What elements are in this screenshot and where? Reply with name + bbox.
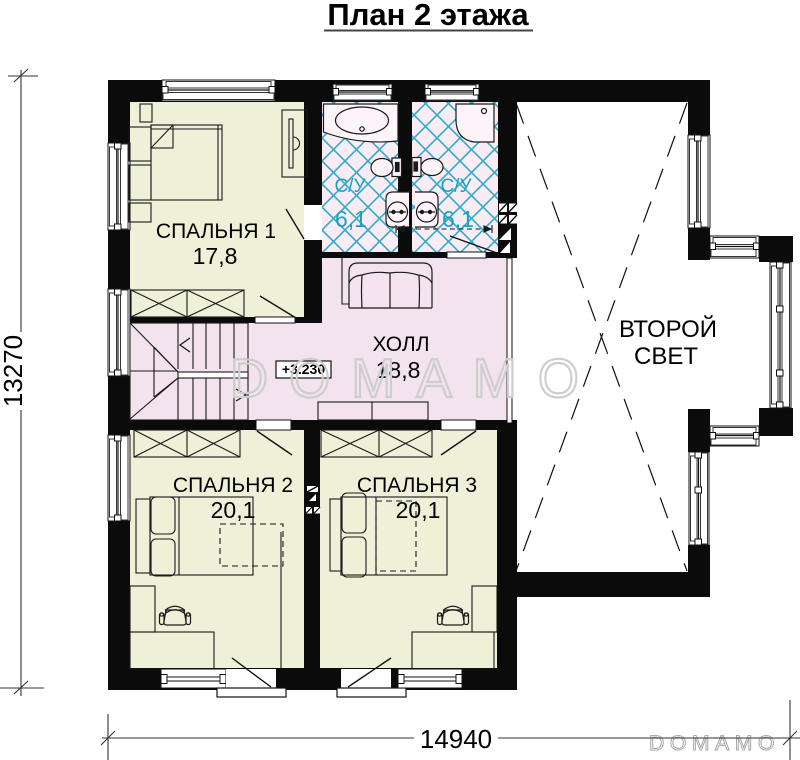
svg-text:ВТОРОЙ: ВТОРОЙ [619, 315, 717, 343]
svg-text:СПАЛЬНЯ 1: СПАЛЬНЯ 1 [156, 220, 276, 243]
svg-text:13270: 13270 [0, 335, 28, 407]
svg-text:СПАЛЬНЯ 3: СПАЛЬНЯ 3 [357, 474, 477, 497]
svg-text:План 2 этажа: План 2 этажа [327, 0, 529, 32]
svg-text:СВЕТ: СВЕТ [634, 343, 698, 370]
svg-text:DOMAMO: DOMAMO [649, 732, 780, 755]
svg-text:С/У: С/У [440, 176, 472, 197]
svg-text:14940: 14940 [420, 724, 492, 754]
svg-text:6,1: 6,1 [442, 206, 474, 232]
svg-text:С/У: С/У [334, 176, 366, 197]
svg-text:СПАЛЬНЯ 2: СПАЛЬНЯ 2 [173, 474, 293, 497]
svg-text:20,1: 20,1 [211, 497, 256, 523]
svg-text:20,1: 20,1 [396, 497, 441, 523]
svg-text:6,1: 6,1 [335, 206, 367, 232]
svg-text:17,8: 17,8 [193, 243, 238, 269]
svg-text:DOMAMO: DOMAMO [230, 347, 600, 409]
